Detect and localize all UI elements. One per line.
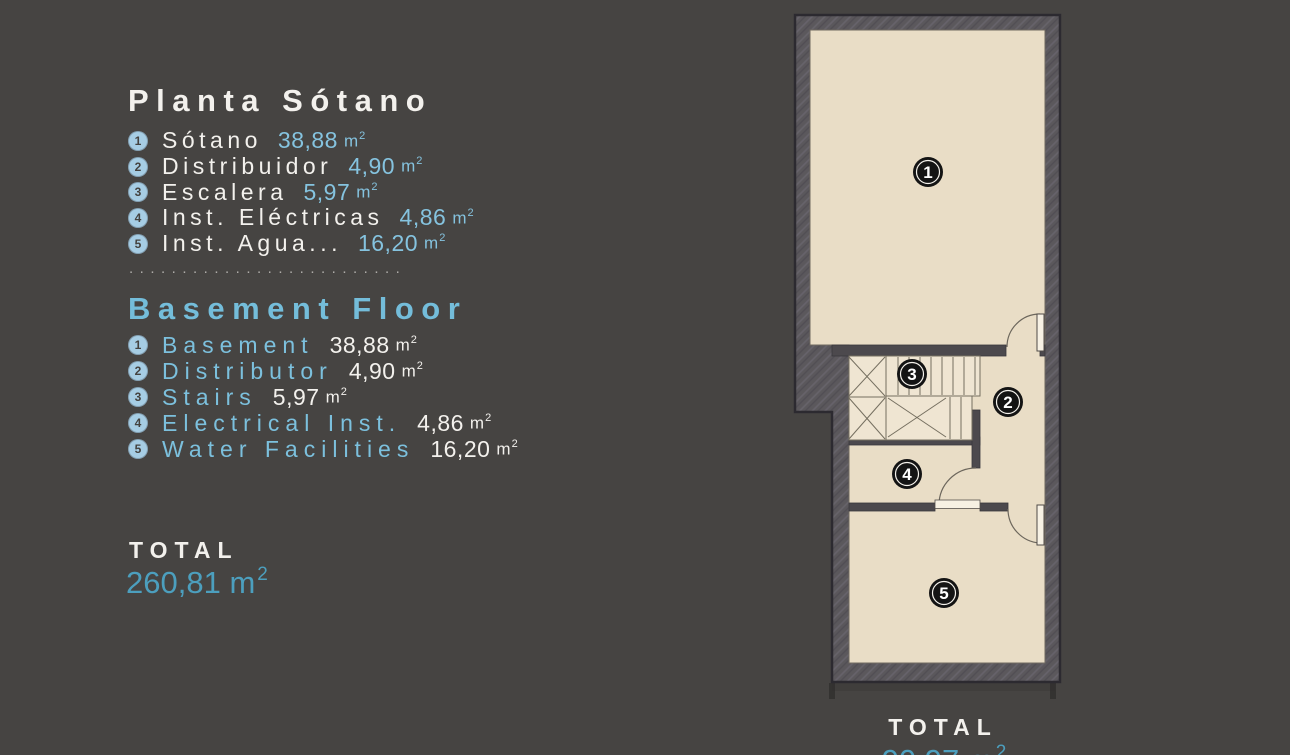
room-label: Inst. Agua... (162, 230, 342, 257)
room-label: Inst. Eléctricas (162, 204, 384, 231)
room-area-unit: m2 (452, 208, 472, 229)
room-area-unit: m2 (470, 413, 490, 434)
unit-sup: 2 (996, 742, 1007, 755)
svg-text:5: 5 (939, 584, 948, 603)
room-area-unit: m2 (402, 361, 422, 382)
room-area-value: 4,90 (349, 358, 396, 385)
unit-base: m (452, 208, 466, 227)
spanish-title: Planta Sótano (128, 83, 432, 119)
room-area-unit: m2 (326, 387, 346, 408)
room-label: Basement (162, 332, 314, 359)
room-area-value: 4,86 (400, 204, 447, 231)
room-area-unit: m2 (424, 233, 444, 254)
unit-sup: 2 (341, 386, 347, 398)
interior-wall (849, 503, 935, 511)
room-marker-2: 2 (993, 387, 1023, 417)
room-number-badge: 3 (128, 387, 148, 407)
grand-total-label: TOTAL (129, 537, 239, 564)
unit-sup: 2 (411, 334, 417, 346)
room-area-value: 38,88 (330, 332, 390, 359)
unit-base: m (401, 157, 415, 176)
grand-total-number: 260,81 (126, 565, 221, 600)
room-marker-1: 1 (913, 157, 943, 187)
door-threshold (935, 500, 980, 509)
list-item: 2 Distribuidor 4,90 m2 (128, 154, 473, 180)
room-label: Escalera (162, 179, 287, 206)
list-item: 1 Sótano 38,88 m2 (128, 128, 473, 154)
room-label: Stairs (162, 384, 257, 411)
unit-base: m (356, 183, 370, 202)
list-item: 4 Electrical Inst. 4,86 m2 (128, 410, 517, 436)
unit-base: m (229, 565, 255, 600)
room-area-value: 16,20 (358, 230, 418, 257)
unit-base: m (344, 131, 358, 150)
unit-sup: 2 (359, 130, 365, 142)
room-marker-5: 5 (929, 578, 959, 608)
svg-text:1: 1 (923, 163, 932, 182)
svg-text:4: 4 (902, 465, 912, 484)
room-area-unit: m2 (496, 439, 516, 460)
room-area-unit: m2 (356, 182, 376, 203)
list-item: 5 Water Facilities 16,20 m2 (128, 436, 517, 462)
stair-flight-lower (886, 396, 972, 440)
list-item: 2 Distributor 4,90 m2 (128, 358, 517, 384)
room-area-value: 4,86 (417, 410, 464, 437)
room-number-badge: 4 (128, 413, 148, 433)
grand-total-value: 260,81 m2 (126, 565, 266, 601)
room-area-unit: m2 (396, 335, 416, 356)
room-label: Distributor (162, 358, 333, 385)
unit-sup: 2 (467, 207, 473, 219)
room-area-unit: m2 (344, 131, 364, 152)
separator-dots: .......................... (129, 260, 406, 277)
svg-text:2: 2 (1003, 393, 1012, 412)
room-number-badge: 2 (128, 361, 148, 381)
room-area-value: 16,20 (430, 436, 490, 463)
list-item: 1 Basement 38,88 m2 (128, 332, 517, 358)
room-label: Electrical Inst. (162, 410, 401, 437)
interior-wall (832, 345, 1006, 356)
unit-base: m (326, 387, 340, 406)
room-number-badge: 4 (128, 208, 148, 228)
room-number-badge: 1 (128, 335, 148, 355)
room-number-badge: 2 (128, 157, 148, 177)
room-marker-4: 4 (892, 459, 922, 489)
room-label: Water Facilities (162, 436, 414, 463)
building-shadow (829, 683, 1056, 699)
room-label: Sótano (162, 127, 262, 154)
interior-wall (972, 410, 980, 468)
room-number-badge: 5 (128, 234, 148, 254)
english-room-list: 1 Basement 38,88 m2 2 Distributor 4,90 m… (128, 332, 517, 462)
room-area-unit: m2 (401, 156, 421, 177)
unit-sup: 2 (371, 181, 377, 193)
room-number-badge: 1 (128, 131, 148, 151)
door-leaf (1037, 314, 1044, 351)
unit-base: m (968, 743, 994, 755)
spanish-room-list: 1 Sótano 38,88 m2 2 Distribuidor 4,90 m2… (128, 128, 473, 256)
unit-base: m (396, 335, 410, 354)
room-area-value: 38,88 (278, 127, 338, 154)
unit-sup: 2 (439, 232, 445, 244)
unit-sup: 2 (417, 360, 423, 372)
unit-base: m (402, 361, 416, 380)
room-number-badge: 3 (128, 182, 148, 202)
unit-base: m (470, 413, 484, 432)
list-item: 4 Inst. Eléctricas 4,86 m2 (128, 205, 473, 231)
list-item: 5 Inst. Agua... 16,20 m2 (128, 231, 473, 257)
svg-text:3: 3 (907, 365, 916, 384)
door-leaf (1037, 505, 1044, 545)
plan-total-label: TOTAL (818, 714, 1068, 741)
plan-total-number: 90,97 (882, 743, 960, 755)
floor-plan-poster: Planta Sótano 1 Sótano 38,88 m2 2 Distri… (0, 0, 1290, 755)
unit-base: m (424, 234, 438, 253)
unit-sup: 2 (512, 438, 518, 450)
room-marker-3: 3 (897, 359, 927, 389)
list-item: 3 Stairs 5,97 m2 (128, 384, 517, 410)
room-area-value: 5,97 (273, 384, 320, 411)
room-number-badge: 5 (128, 439, 148, 459)
plan-total: TOTAL 90,97 m2 (818, 714, 1068, 755)
room-area-value: 4,90 (348, 153, 395, 180)
stair-winder (849, 356, 886, 440)
interior-wall (980, 503, 1008, 511)
room-area-value: 5,97 (303, 179, 350, 206)
unit-sup: 2 (416, 155, 422, 167)
unit-base: m (496, 439, 510, 458)
plan-total-value: 90,97 m2 (818, 743, 1068, 755)
room-label: Distribuidor (162, 153, 332, 180)
list-item: 3 Escalera 5,97 m2 (128, 179, 473, 205)
basement-floor-plan: 1 2 3 4 5 (780, 5, 1075, 705)
unit-sup: 2 (485, 412, 491, 424)
unit-sup: 2 (257, 564, 268, 585)
english-title: Basement Floor (128, 291, 467, 327)
